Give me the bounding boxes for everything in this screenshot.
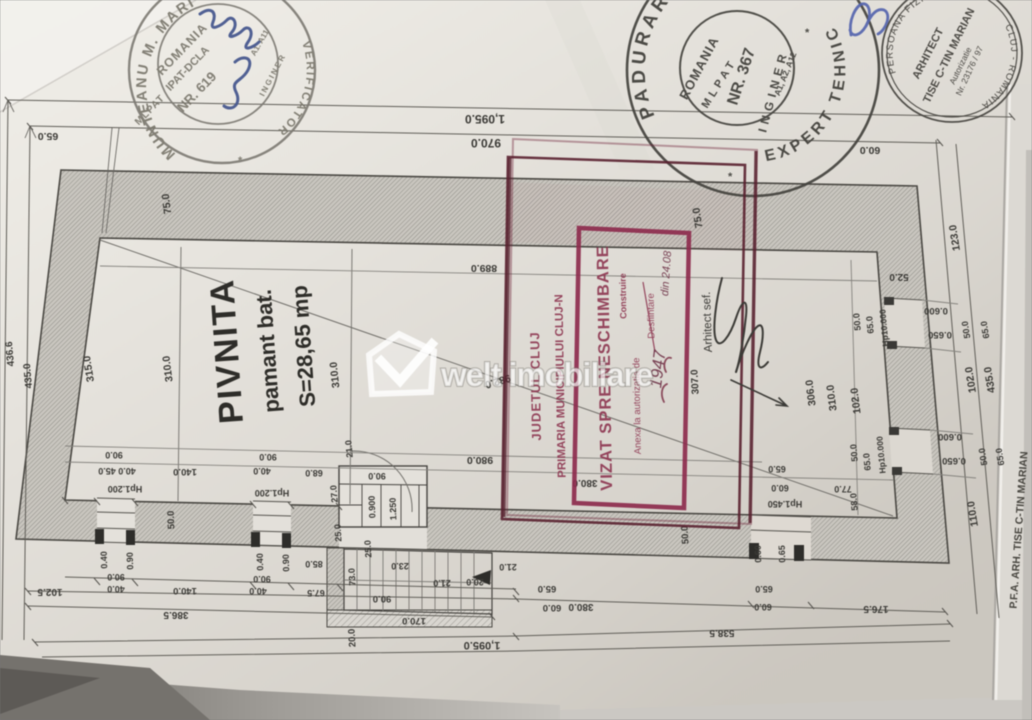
svg-text:90.0: 90.0: [373, 593, 392, 604]
svg-text:20.0: 20.0: [466, 577, 484, 587]
svg-text:73.0: 73.0: [347, 568, 358, 586]
svg-text:65.0: 65.0: [861, 453, 872, 471]
svg-text:380.0: 380.0: [568, 601, 593, 612]
svg-text:20.0: 20.0: [347, 628, 359, 647]
svg-text:0.40: 0.40: [99, 551, 110, 569]
svg-text:0.600: 0.600: [924, 305, 948, 316]
svg-text:40.0 45.0: 40.0 45.0: [98, 466, 136, 476]
svg-text:140.0: 140.0: [173, 585, 197, 596]
svg-text:0.900: 0.900: [367, 496, 378, 519]
svg-text:970.0: 970.0: [471, 136, 501, 150]
svg-text:50.0: 50.0: [851, 313, 862, 331]
svg-text:0.90: 0.90: [125, 552, 136, 570]
svg-text:102.5: 102.5: [37, 586, 62, 597]
svg-text:176.5: 176.5: [863, 603, 888, 614]
svg-text:50.0: 50.0: [680, 525, 692, 544]
svg-text:0.650: 0.650: [928, 329, 952, 340]
svg-text:25.0: 25.0: [363, 540, 374, 558]
svg-text:40.0: 40.0: [107, 584, 125, 594]
svg-text:307.0: 307.0: [689, 369, 701, 395]
svg-text:60.0: 60.0: [860, 144, 881, 156]
svg-text:Arhitect sef.: Arhitect sef.: [701, 291, 715, 352]
svg-text:21.0: 21.0: [499, 562, 517, 572]
svg-text:67.5: 67.5: [307, 588, 325, 598]
svg-text:0.650: 0.650: [942, 455, 966, 466]
svg-text:40.0: 40.0: [249, 586, 267, 596]
svg-text:27.0: 27.0: [328, 485, 339, 503]
svg-text:1,095.0: 1,095.0: [465, 112, 505, 126]
svg-text:65.0: 65.0: [864, 316, 875, 334]
svg-text:85.0: 85.0: [305, 559, 323, 569]
svg-text:40.0: 40.0: [253, 466, 271, 476]
svg-text:90.0: 90.0: [253, 574, 271, 584]
svg-text:65.0: 65.0: [768, 464, 786, 474]
svg-text:welt imobiliare: welt imobiliare: [440, 356, 653, 393]
svg-text:90.0: 90.0: [368, 471, 386, 481]
svg-text:*: *: [238, 155, 243, 167]
svg-text:Hp1.200: Hp1.200: [255, 488, 290, 498]
svg-text:980.0: 980.0: [467, 454, 493, 466]
svg-text:Hp1.450: Hp1.450: [768, 499, 803, 509]
svg-text:386.5: 386.5: [163, 609, 188, 620]
svg-text:52.0: 52.0: [889, 271, 909, 282]
svg-text:538.5: 538.5: [709, 627, 734, 638]
svg-text:65.0: 65.0: [538, 583, 557, 594]
svg-text:65.0: 65.0: [755, 584, 773, 594]
svg-text:0.60: 0.60: [753, 545, 764, 563]
svg-text:25.0: 25.0: [333, 524, 344, 542]
svg-text:50.0: 50.0: [848, 444, 859, 462]
svg-text:1.250: 1.250: [388, 498, 399, 521]
svg-text:68.0: 68.0: [305, 468, 323, 478]
svg-text:*: *: [805, 27, 810, 39]
svg-text:65.0: 65.0: [38, 130, 59, 142]
svg-text:0.600: 0.600: [938, 431, 962, 442]
svg-text:90.0: 90.0: [259, 452, 277, 462]
svg-text:60.0: 60.0: [771, 483, 789, 493]
svg-text:0.65: 0.65: [777, 545, 788, 563]
svg-text:75.0: 75.0: [160, 193, 174, 215]
svg-text:889.0: 889.0: [471, 262, 497, 274]
svg-text:21.0: 21.0: [433, 578, 451, 588]
svg-text:23.0: 23.0: [391, 561, 409, 571]
svg-text:Hp1.200: Hp1.200: [108, 484, 143, 494]
svg-text:140.0: 140.0: [173, 466, 197, 477]
svg-text:436.6: 436.6: [4, 340, 17, 366]
svg-text:1,095.0: 1,095.0: [464, 639, 501, 651]
svg-text:60.0: 60.0: [543, 602, 562, 613]
svg-text:*: *: [728, 171, 733, 183]
svg-text:58.0: 58.0: [848, 493, 859, 511]
svg-text:77.0: 77.0: [834, 484, 852, 494]
svg-text:170.0: 170.0: [402, 615, 426, 626]
svg-text:Construire: Construire: [618, 273, 629, 319]
svg-text:0.40: 0.40: [255, 553, 266, 571]
svg-text:435.0: 435.0: [22, 362, 35, 388]
svg-text:0.90: 0.90: [281, 554, 292, 572]
svg-text:60.0: 60.0: [754, 602, 772, 612]
svg-text:90.0: 90.0: [107, 572, 125, 582]
svg-text:90.0: 90.0: [105, 450, 123, 460]
svg-text:50.0: 50.0: [166, 511, 178, 530]
svg-text:21.0: 21.0: [343, 440, 354, 458]
